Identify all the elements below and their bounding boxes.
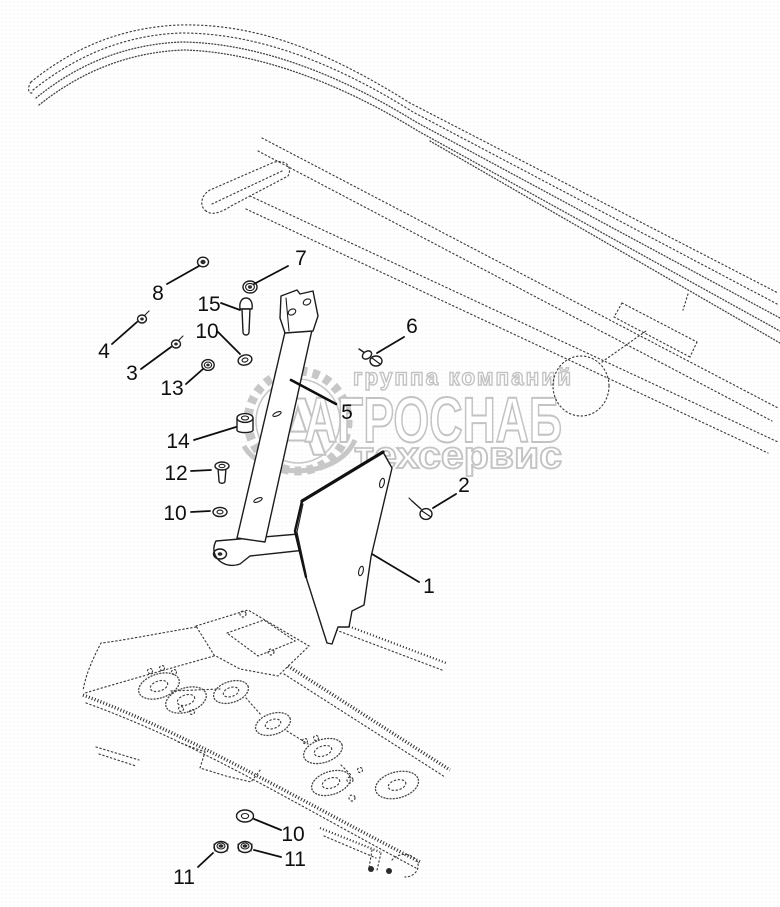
callout-11a: 11 <box>173 853 213 889</box>
callout-4: 4 <box>98 322 137 363</box>
callout-label-12: 12 <box>164 462 187 485</box>
callout-6: 6 <box>377 315 418 353</box>
callout-label-10b: 10 <box>163 502 186 525</box>
part-4-screw <box>138 311 150 323</box>
callout-1: 1 <box>372 554 435 598</box>
part-11-nut-left <box>214 842 228 853</box>
part-10-washer-lower <box>237 810 254 822</box>
callout-7: 7 <box>254 247 307 284</box>
callout-label-10c: 10 <box>281 823 304 846</box>
callout-label-5: 5 <box>341 401 353 424</box>
callout-8: 8 <box>152 266 199 305</box>
part-10-washer-middle <box>213 507 227 516</box>
part-14-bushing <box>237 414 253 433</box>
part-12-screw <box>215 462 229 483</box>
part-2-screw <box>409 498 432 519</box>
callout-10a: 10 <box>195 320 240 354</box>
cutterbar <box>83 610 450 877</box>
callout-label-11a: 11 <box>173 866 195 889</box>
part-1-shield <box>295 452 392 644</box>
callout-14: 14 <box>166 427 236 453</box>
callout-13: 13 <box>160 369 203 400</box>
callout-10c: 10 <box>254 819 305 846</box>
callout-label-13: 13 <box>160 377 183 400</box>
part-11-nut-right <box>238 842 252 853</box>
callout-label-3: 3 <box>126 362 138 385</box>
callout-label-8: 8 <box>152 282 164 305</box>
part-3-screw <box>172 336 184 348</box>
callout-label-6: 6 <box>406 315 418 338</box>
callout-2: 2 <box>433 474 470 508</box>
callout-15: 15 <box>197 293 240 316</box>
callout-12: 12 <box>164 462 211 485</box>
callout-label-14: 14 <box>166 430 190 453</box>
callout-label-10a: 10 <box>195 320 218 343</box>
parts-diagram-page: А группа компаний АГРОСНАБ техсервис <box>0 0 780 907</box>
callout-label-2: 2 <box>458 474 470 497</box>
callout-label-11b: 11 <box>284 848 306 871</box>
cutterbar-mount <box>320 828 418 877</box>
callout-label-1: 1 <box>423 575 435 598</box>
callout-label-15: 15 <box>197 293 220 316</box>
callout-label-4: 4 <box>98 340 110 363</box>
callout-label-7: 7 <box>295 247 307 270</box>
part-10-washer-upper <box>237 353 253 366</box>
callout-10b: 10 <box>163 502 210 525</box>
reel-tube <box>29 25 780 343</box>
callout-11b: 11 <box>254 848 306 871</box>
part-15-bolt <box>240 298 252 335</box>
